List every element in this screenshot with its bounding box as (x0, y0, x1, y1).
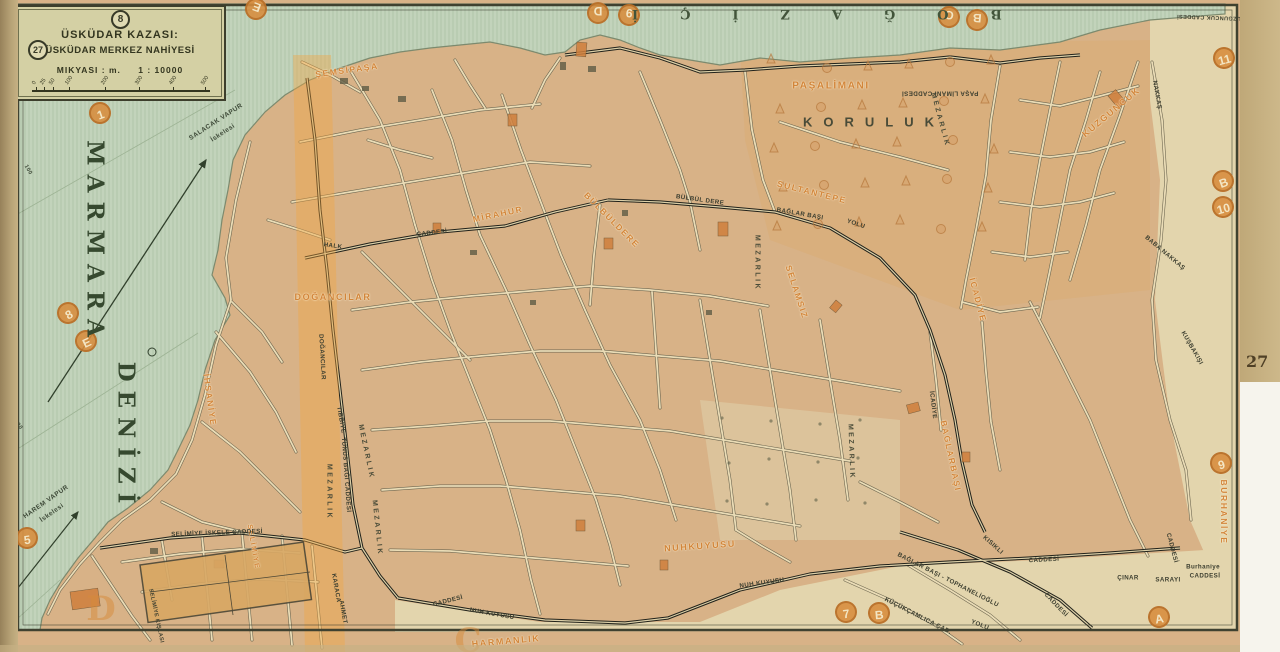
map-label: BURHANİYE (1219, 480, 1229, 545)
sea-name-bogazici: BOĞAZİÇİ (590, 6, 1002, 21)
map-label: ÇINAR (1117, 575, 1139, 582)
map-label: MEZARLIK (326, 464, 333, 520)
sea-name-marmara: MARMARA (82, 140, 109, 346)
scale-tick (139, 87, 140, 92)
map-label: PAŞALİMANI (792, 81, 869, 92)
scale-tick-label: 0 (31, 80, 38, 86)
scale-tick (173, 87, 174, 92)
scale-bar: 02550100200300400500 (32, 90, 210, 92)
sea-name-denizi: DENİZİ (113, 362, 140, 513)
page-margin-bottom (0, 645, 1240, 652)
scale-tick (44, 87, 45, 92)
scale-ratio: 1 : 10000 (138, 65, 183, 75)
sheet-watermark-letter: D (86, 589, 115, 629)
scale-tick-label: 100 (64, 75, 74, 86)
scale-tick-label: 400 (168, 75, 178, 86)
scale-tick (69, 87, 70, 92)
scale-tick-label: 50 (48, 78, 56, 86)
margin-white (1240, 382, 1280, 652)
map-label: Burhaniye (1186, 564, 1220, 571)
legend-title-line2: ÜSKÜDAR MERKEZ NAHİYESİ (16, 45, 224, 56)
scale-tick (53, 87, 54, 92)
page-number: 27 (1246, 352, 1268, 371)
map-sheet: ŞEMSİPAŞAPAŞALİMANIKUZGUNCUKSULTANTEPEMİ… (0, 0, 1240, 652)
legend-scale-text: MIKYASI : m. 1 : 10000 (16, 65, 224, 75)
page-gutter-shadow (0, 0, 18, 652)
scale-tick-label: 500 (200, 75, 210, 86)
margin-tan (1240, 0, 1280, 382)
map-label: DOĞANCILAR (295, 292, 372, 302)
map-label: SARAYI (1155, 577, 1180, 584)
legend-title-line1: ÜSKÜDAR KAZASI: (16, 29, 224, 41)
scale-tick (36, 87, 37, 92)
map-label: MEZARLIK (754, 235, 761, 291)
scale-tick (205, 87, 206, 92)
scale-tick-label: 300 (134, 75, 144, 86)
map-label: PAŞA LİMANI CADDESİ (902, 90, 979, 97)
scale-tick-label: 25 (40, 78, 48, 86)
map-label: KORULUK (803, 115, 945, 130)
map-label: CADDESİ (1190, 573, 1221, 580)
scanned-map-page: ŞEMSİPAŞAPAŞALİMANIKUZGUNCUKSULTANTEPEMİ… (0, 0, 1280, 652)
page-margin-right: 27 (1240, 0, 1280, 652)
scale-tick (105, 87, 106, 92)
scale-tick-label: 200 (100, 75, 110, 86)
scale-label: MIKYASI : m. (57, 65, 121, 75)
legend-box: 8 ÜSKÜDAR KAZASI: 27 ÜSKÜDAR MERKEZ NAHİ… (14, 5, 226, 101)
legend-sheet-number: 8 (111, 10, 130, 29)
